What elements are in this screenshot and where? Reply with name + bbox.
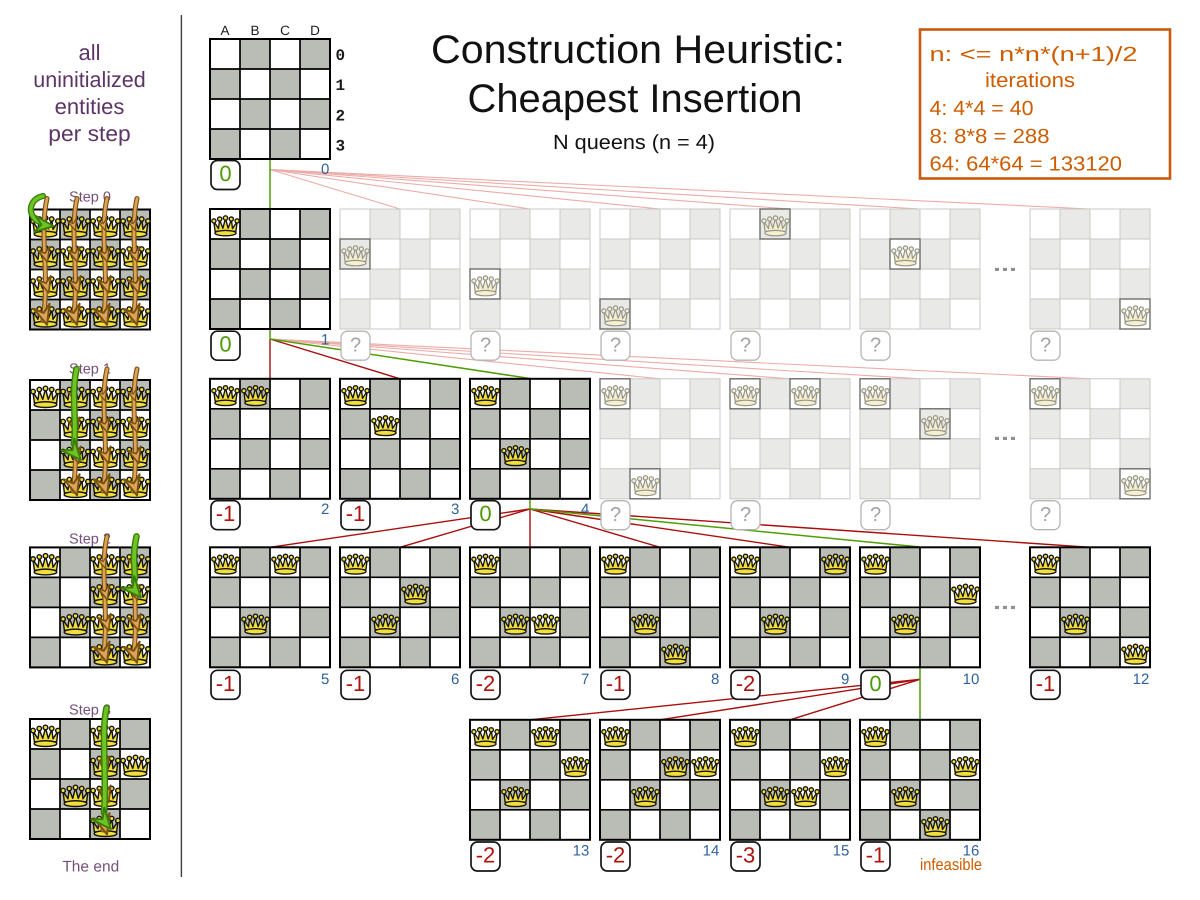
svg-text:14: 14 [703,843,720,860]
svg-text:8: 8*8 = 288: 8: 8*8 = 288 [930,125,1050,148]
svg-text:?: ? [1040,504,1051,526]
svg-text:per step: per step [48,121,131,146]
svg-text:C: C [280,23,290,38]
svg-text:3: 3 [451,501,459,518]
svg-text:6: 6 [451,671,459,688]
svg-text:-1: -1 [866,843,886,868]
svg-text:2: 2 [321,501,329,518]
svg-text:7: 7 [581,671,589,688]
svg-text:12: 12 [1133,671,1150,688]
svg-text:1: 1 [336,77,346,95]
svg-text:Construction Heuristic:: Construction Heuristic: [431,28,845,72]
svg-text:4: 4*4 = 40: 4: 4*4 = 40 [930,97,1034,120]
svg-text:0: 0 [321,161,329,178]
svg-text:...: ... [993,422,1017,445]
svg-text:13: 13 [573,843,590,860]
svg-text:-3: -3 [736,843,756,868]
svg-text:-2: -2 [606,843,626,868]
svg-text:5: 5 [321,671,329,688]
svg-text:9: 9 [841,671,849,688]
svg-text:-1: -1 [216,501,236,526]
svg-text:n: <= n*n*(n+1)/2: n: <= n*n*(n+1)/2 [930,43,1138,66]
svg-text:entities: entities [55,94,125,119]
svg-text:64: 64*64 = 133120: 64: 64*64 = 133120 [930,153,1123,176]
svg-text:-2: -2 [736,671,756,696]
svg-text:10: 10 [963,671,980,688]
svg-text:?: ? [1040,335,1051,357]
svg-text:-1: -1 [216,671,236,696]
svg-text:-1: -1 [346,671,366,696]
svg-text:iterations: iterations [985,69,1075,92]
svg-text:?: ? [610,335,621,357]
svg-text:N queens (n = 4): N queens (n = 4) [553,131,715,154]
svg-text:0: 0 [336,47,346,65]
svg-text:The end: The end [62,859,119,876]
svg-text:3: 3 [336,138,346,156]
svg-text:A: A [220,23,229,38]
svg-text:?: ? [870,504,881,526]
svg-text:2: 2 [336,107,346,125]
svg-text:?: ? [740,504,751,526]
svg-text:15: 15 [833,843,850,860]
svg-text:all: all [78,40,100,65]
svg-text:...: ... [993,591,1017,614]
svg-text:?: ? [350,335,361,357]
svg-text:-2: -2 [476,843,496,868]
svg-text:0: 0 [869,671,881,696]
svg-text:uninitialized: uninitialized [33,67,146,92]
svg-text:8: 8 [711,671,719,688]
svg-text:D: D [310,23,320,38]
svg-text:1: 1 [321,332,329,349]
svg-text:?: ? [610,504,621,526]
svg-text:...: ... [993,253,1017,276]
svg-text:0: 0 [219,332,231,357]
svg-text:-1: -1 [606,671,626,696]
svg-text:infeasible: infeasible [920,856,982,874]
svg-text:?: ? [870,335,881,357]
svg-text:?: ? [480,335,491,357]
svg-text:Cheapest Insertion: Cheapest Insertion [468,77,803,121]
svg-text:B: B [250,23,259,38]
svg-text:-1: -1 [346,501,366,526]
svg-text:?: ? [740,335,751,357]
svg-text:-1: -1 [1036,671,1056,696]
svg-text:4: 4 [581,501,589,518]
svg-text:0: 0 [219,161,231,186]
svg-text:-2: -2 [476,671,496,696]
svg-text:0: 0 [479,501,491,526]
